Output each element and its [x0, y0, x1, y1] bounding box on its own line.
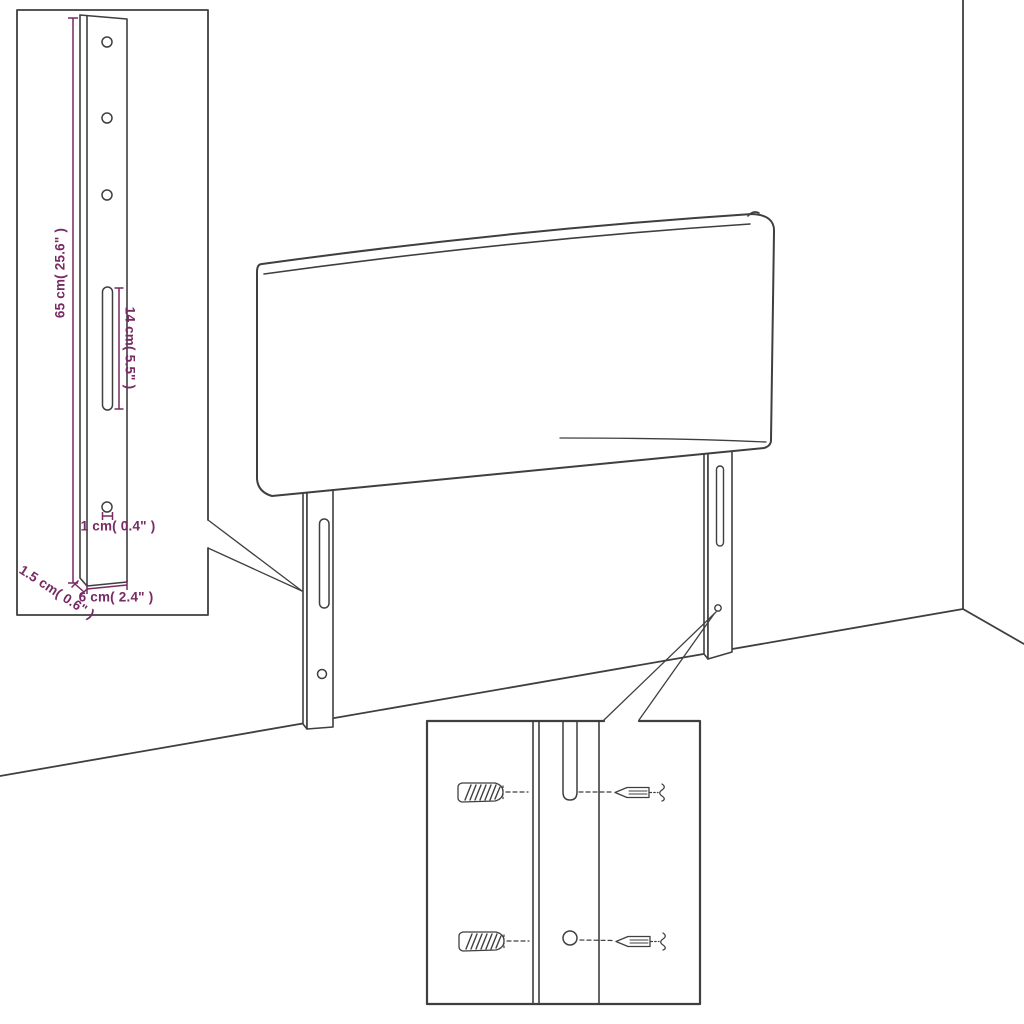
headboard-panel — [257, 214, 774, 496]
callout-line-lower — [208, 548, 302, 591]
fastener-detail-box — [427, 721, 700, 1004]
callout-line-upper — [208, 520, 302, 591]
dim-width-label: 6 cm( 2.4" ) — [79, 590, 154, 605]
fastener-detail-callout — [604, 612, 716, 720]
dim-slot-label: 14 cm( 5.5" ) — [123, 307, 138, 390]
headboard-assembly-diagram: 65 cm( 25.6" ) 14 cm( 5.5" ) 1 cm( 0.4" … — [0, 0, 1024, 1024]
floor-line-right — [963, 609, 1024, 644]
assembly-diagram-page: 65 cm( 25.6" ) 14 cm( 5.5" ) 1 cm( 0.4" … — [0, 0, 1024, 1024]
right-leg — [704, 449, 732, 659]
dim-height-label: 65 cm( 25.6" ) — [53, 228, 68, 318]
right-leg-front-face — [708, 449, 732, 659]
dim-hole-label: 1 cm( 0.4" ) — [81, 519, 156, 534]
leg-detail-callout — [208, 520, 302, 591]
callout-line-lower — [639, 614, 714, 720]
leg-detail-box: 65 cm( 25.6" ) 14 cm( 5.5" ) 1 cm( 0.4" … — [17, 10, 208, 622]
callout-line-upper — [604, 612, 716, 720]
headboard — [257, 212, 774, 496]
left-leg — [303, 485, 333, 729]
